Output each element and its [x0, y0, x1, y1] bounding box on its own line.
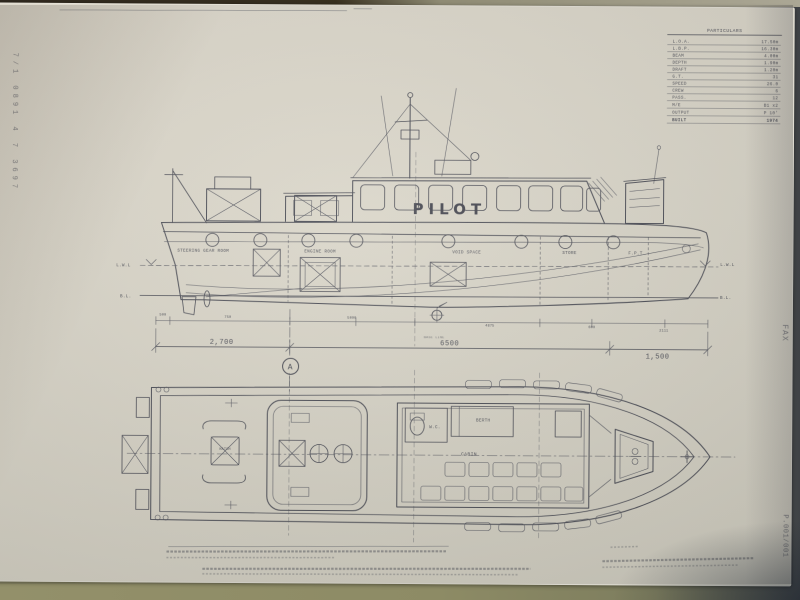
waterline-label-right: L.W.L	[720, 263, 735, 268]
compartment-label-fore: F.P.T	[628, 251, 643, 256]
deck-plan-view: HATCH	[122, 368, 736, 544]
dim-upper: 4875	[485, 325, 494, 329]
deckhouse-profile: PILOT	[283, 175, 616, 223]
spec-row-value: 16.30m	[761, 47, 778, 52]
section-mark-letter: A	[288, 363, 294, 372]
spec-row-label: SPEED	[672, 82, 687, 87]
dim-main: 6500	[440, 340, 459, 348]
spec-row-value: 1.20m	[764, 68, 779, 73]
spec-table: PARTICULARS L.O.A.17.50m L.B.P.16.30m BE…	[667, 28, 782, 124]
paper-wrap: PARTICULARS L.O.A.17.50m L.B.P.16.30m BE…	[0, 0, 800, 600]
spec-row-value: B1 x2	[764, 104, 779, 109]
dim-upper: 2111	[659, 330, 668, 334]
compartment-label-aft: STEERING GEAR ROOM	[177, 249, 229, 254]
fax-margin-text: 7/1 0891 4 7 3697 FAX P.001/001	[7, 53, 791, 558]
compartment-label-store: STORE	[562, 251, 577, 256]
spec-row-value: 17.50m	[761, 40, 778, 45]
spec-row-label: BEAM	[672, 54, 684, 59]
baseline-label-left: B.L.	[120, 294, 132, 299]
spec-row-label: CREW	[672, 89, 684, 94]
dimension-lines: 500 750 5000 4875 600 2111 2,700 6500 1,…	[151, 150, 712, 395]
cabin-label: CABIN	[461, 451, 477, 457]
hull-profile	[161, 220, 709, 317]
waterline-baseline: L.W.L L.W.L B.L. B.L.	[116, 257, 735, 303]
baseline-text: BASE LINE	[424, 336, 445, 340]
waterline-label-left: L.W.L	[116, 263, 131, 268]
dim-main: 2,700	[210, 339, 234, 347]
section-mark-a-icon: A	[282, 309, 299, 393]
dim-main: 1,500	[646, 354, 670, 362]
spec-row-label: G.T.	[672, 75, 684, 80]
photo-of-faxed-boat-drawing: PARTICULARS L.O.A.17.50m L.B.P.16.30m BE…	[0, 0, 800, 600]
spec-row-label: M/E	[672, 103, 681, 108]
compartment-labels: STEERING GEAR ROOM ENGINE ROOM VOID SPAC…	[177, 249, 643, 257]
fax-label-right: FAX	[780, 324, 789, 341]
spec-row-label: BUILT	[672, 118, 687, 123]
aft-hatch: HATCH	[202, 421, 245, 483]
hatch-label: HATCH	[219, 448, 231, 452]
spec-row-label: OUTPUT	[672, 111, 689, 116]
compartment-label-mid: VOID SPACE	[452, 250, 481, 255]
baseline-label-right: B.L.	[720, 296, 732, 301]
spec-row-label: L.O.A.	[673, 40, 690, 45]
pilot-sign: PILOT	[413, 200, 487, 218]
spec-row-value: 12	[772, 96, 778, 101]
dim-upper: 750	[224, 316, 231, 320]
spec-row-value: 1.90m	[764, 61, 779, 66]
dim-upper: 5000	[347, 317, 356, 321]
spec-row-label: DRAFT	[672, 68, 687, 73]
compartment-label-engine: ENGINE ROOM	[304, 249, 336, 254]
berth-label: BERTH	[476, 418, 491, 423]
spec-row-value: P 10'	[764, 111, 778, 116]
spec-row-label: DEPTH	[672, 61, 687, 66]
fax-header-left: 7/1 0891 4 7 3697	[10, 53, 19, 192]
side-profile-view: PILOT	[116, 86, 736, 318]
spec-row-value: 26.0	[767, 82, 779, 87]
spec-row-value: 4.00m	[764, 54, 779, 59]
scan-note-lines	[166, 544, 754, 578]
dim-upper: 600	[588, 326, 595, 330]
dim-upper: 500	[159, 314, 166, 318]
fax-page-indicator: P.001/001	[780, 514, 788, 557]
spec-row-label: L.B.P.	[673, 47, 690, 52]
cabin-plan: W.C. BERTH CABIN	[397, 403, 612, 508]
spec-row-label: PASS.	[672, 96, 686, 101]
scan-artifact-lines	[60, 7, 372, 12]
aft-house-plan	[267, 400, 368, 511]
porthole-icons	[206, 233, 620, 249]
spec-table-title: PARTICULARS	[707, 28, 742, 34]
spec-row-value: 6	[775, 89, 778, 94]
wc-label: W.C.	[429, 425, 441, 430]
spec-row-value: 31	[773, 75, 779, 80]
centerline-symbol-icon	[430, 302, 447, 322]
general-arrangement-drawing: PARTICULARS L.O.A.17.50m L.B.P.16.30m BE…	[0, 0, 800, 600]
spec-row-value: 1974	[767, 119, 779, 124]
